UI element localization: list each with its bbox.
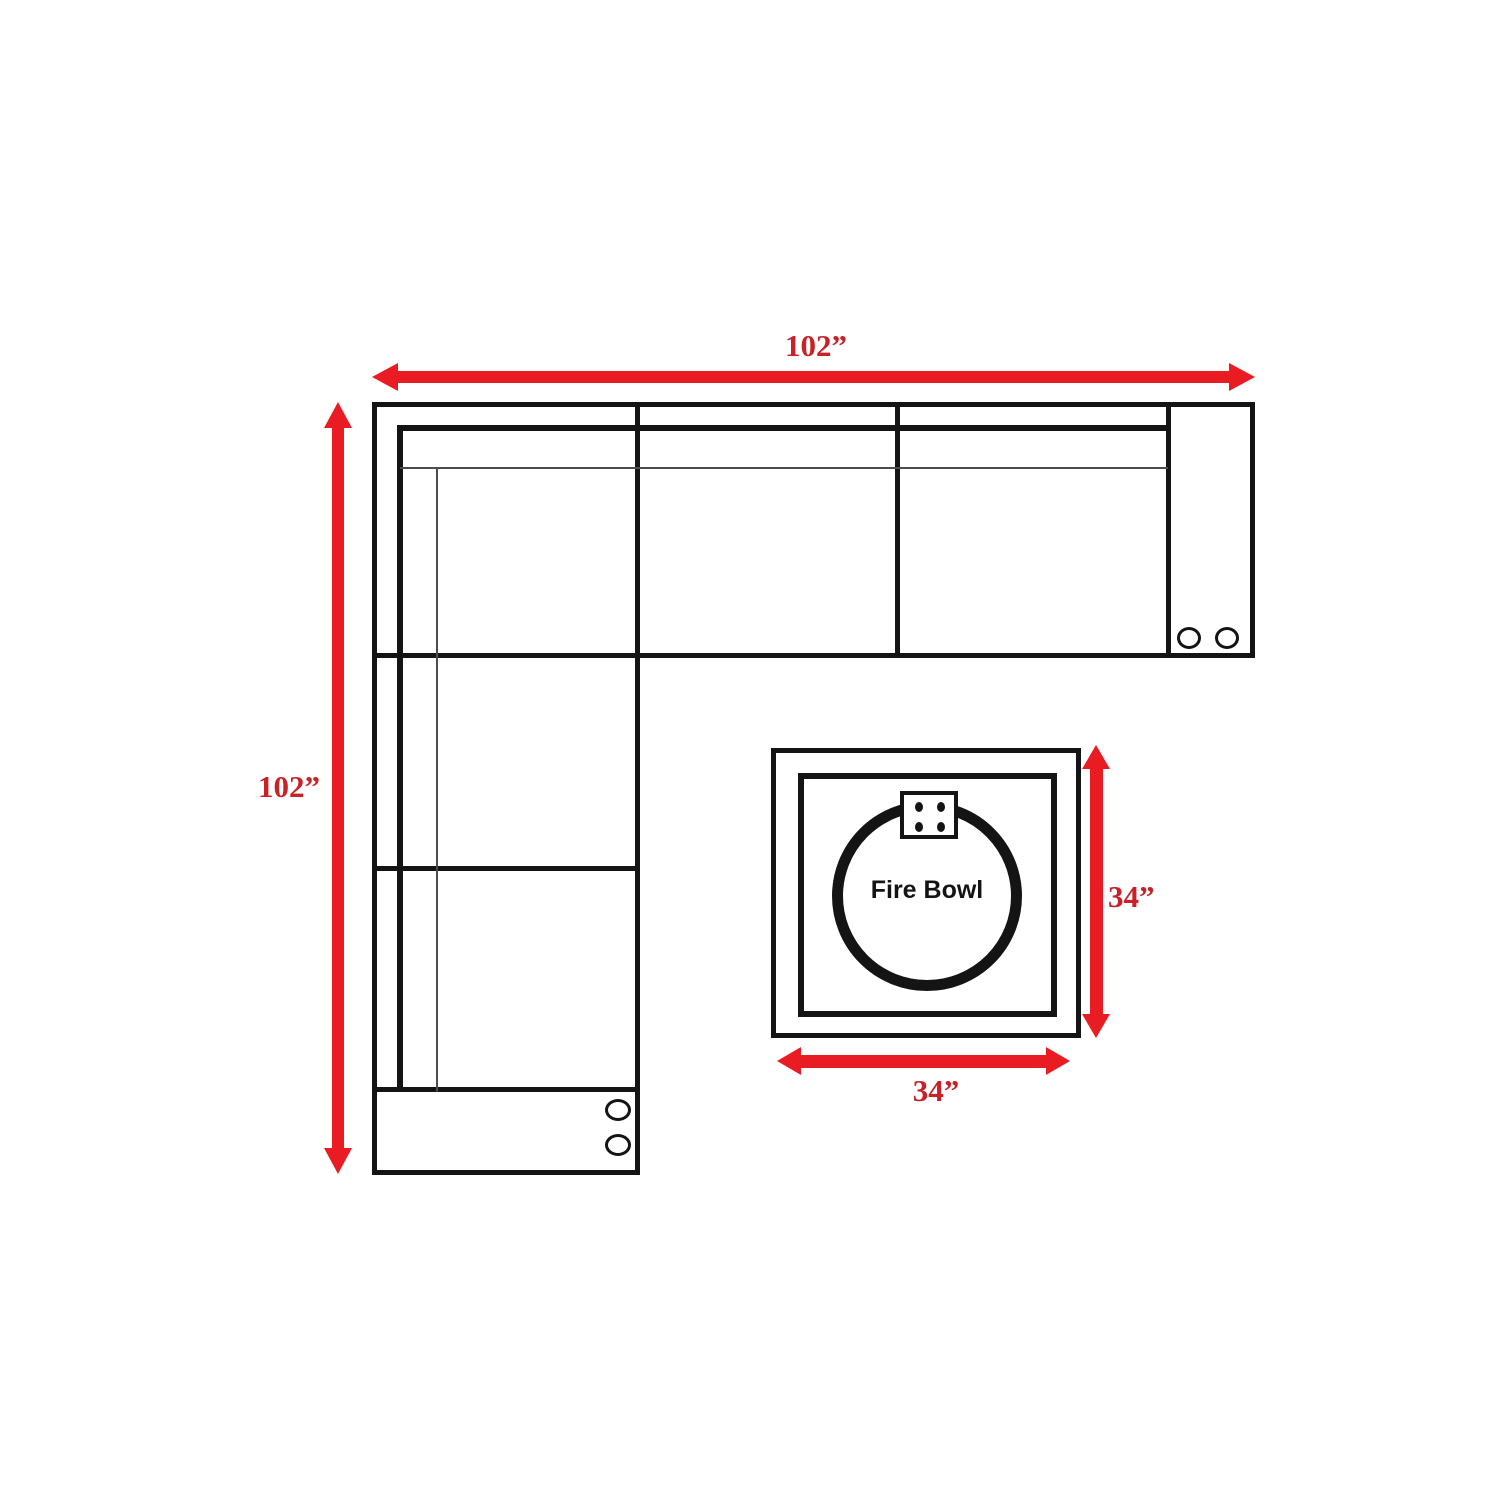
sofa-depth-arrow-shaft bbox=[332, 426, 344, 1150]
sofa-bottom-armrest-divider bbox=[372, 1087, 640, 1092]
cupholder-bottom-armrest-2 bbox=[605, 1134, 631, 1156]
sofa-width-arrow bbox=[372, 363, 1255, 391]
fire-table-height-arrow bbox=[1082, 745, 1110, 1038]
sofa-depth-label: 102” bbox=[180, 769, 320, 805]
burner-dot-4 bbox=[937, 822, 945, 832]
fire-bowl-label: Fire Bowl bbox=[852, 876, 1002, 905]
fire-table-height-label: 34” bbox=[1108, 879, 1198, 915]
sofa-depth-arrow-bottom-head bbox=[324, 1148, 352, 1174]
sofa-right-edge bbox=[1250, 402, 1255, 658]
sofa-seam-line-vertical bbox=[436, 467, 438, 1092]
sofa-seam-line-horizontal bbox=[400, 467, 1168, 469]
fire-table-height-arrow-shaft bbox=[1090, 767, 1103, 1016]
fire-bowl-burner-square bbox=[900, 791, 958, 839]
fire-table-width-arrow-shaft bbox=[799, 1055, 1048, 1068]
burner-dot-3 bbox=[915, 822, 923, 832]
sofa-width-arrow-right-head bbox=[1229, 363, 1255, 391]
sofa-top-edge bbox=[372, 402, 1255, 407]
sofa-backrest-line-vertical bbox=[397, 425, 403, 1092]
fire-table-width-arrow bbox=[777, 1047, 1070, 1075]
fire-table-width-arrow-right-head bbox=[1046, 1047, 1070, 1075]
cupholder-right-armrest-1 bbox=[1177, 627, 1201, 649]
burner-dot-1 bbox=[915, 802, 923, 812]
dimension-diagram: Fire Bowl 102” 102” 34” 34” bbox=[0, 0, 1500, 1500]
sofa-backrest-line-horizontal bbox=[397, 425, 1168, 431]
sofa-width-label: 102” bbox=[756, 328, 876, 364]
fire-table-height-arrow-bottom-head bbox=[1082, 1014, 1110, 1038]
burner-dot-2 bbox=[937, 802, 945, 812]
sofa-leftcol-seat-divider bbox=[372, 866, 640, 871]
sofa-depth-arrow bbox=[324, 402, 352, 1174]
sofa-width-arrow-left-head bbox=[372, 363, 398, 391]
fire-table-height-arrow-top-head bbox=[1082, 745, 1110, 769]
cupholder-right-armrest-2 bbox=[1215, 627, 1239, 649]
sofa-leftcol-right-edge bbox=[635, 402, 640, 1175]
sofa-leftcol-bottom-edge bbox=[372, 1170, 640, 1175]
sofa-left-edge bbox=[372, 402, 377, 1175]
cupholder-bottom-armrest-1 bbox=[605, 1099, 631, 1121]
sofa-depth-arrow-top-head bbox=[324, 402, 352, 428]
sofa-toprow-seat-divider bbox=[895, 402, 900, 658]
fire-table-width-arrow-left-head bbox=[777, 1047, 801, 1075]
sofa-right-armrest-divider bbox=[1166, 402, 1171, 658]
sofa-toprow-bottom-edge bbox=[372, 653, 1255, 658]
sofa-width-arrow-shaft bbox=[396, 371, 1231, 383]
fire-table-width-label: 34” bbox=[876, 1073, 996, 1109]
